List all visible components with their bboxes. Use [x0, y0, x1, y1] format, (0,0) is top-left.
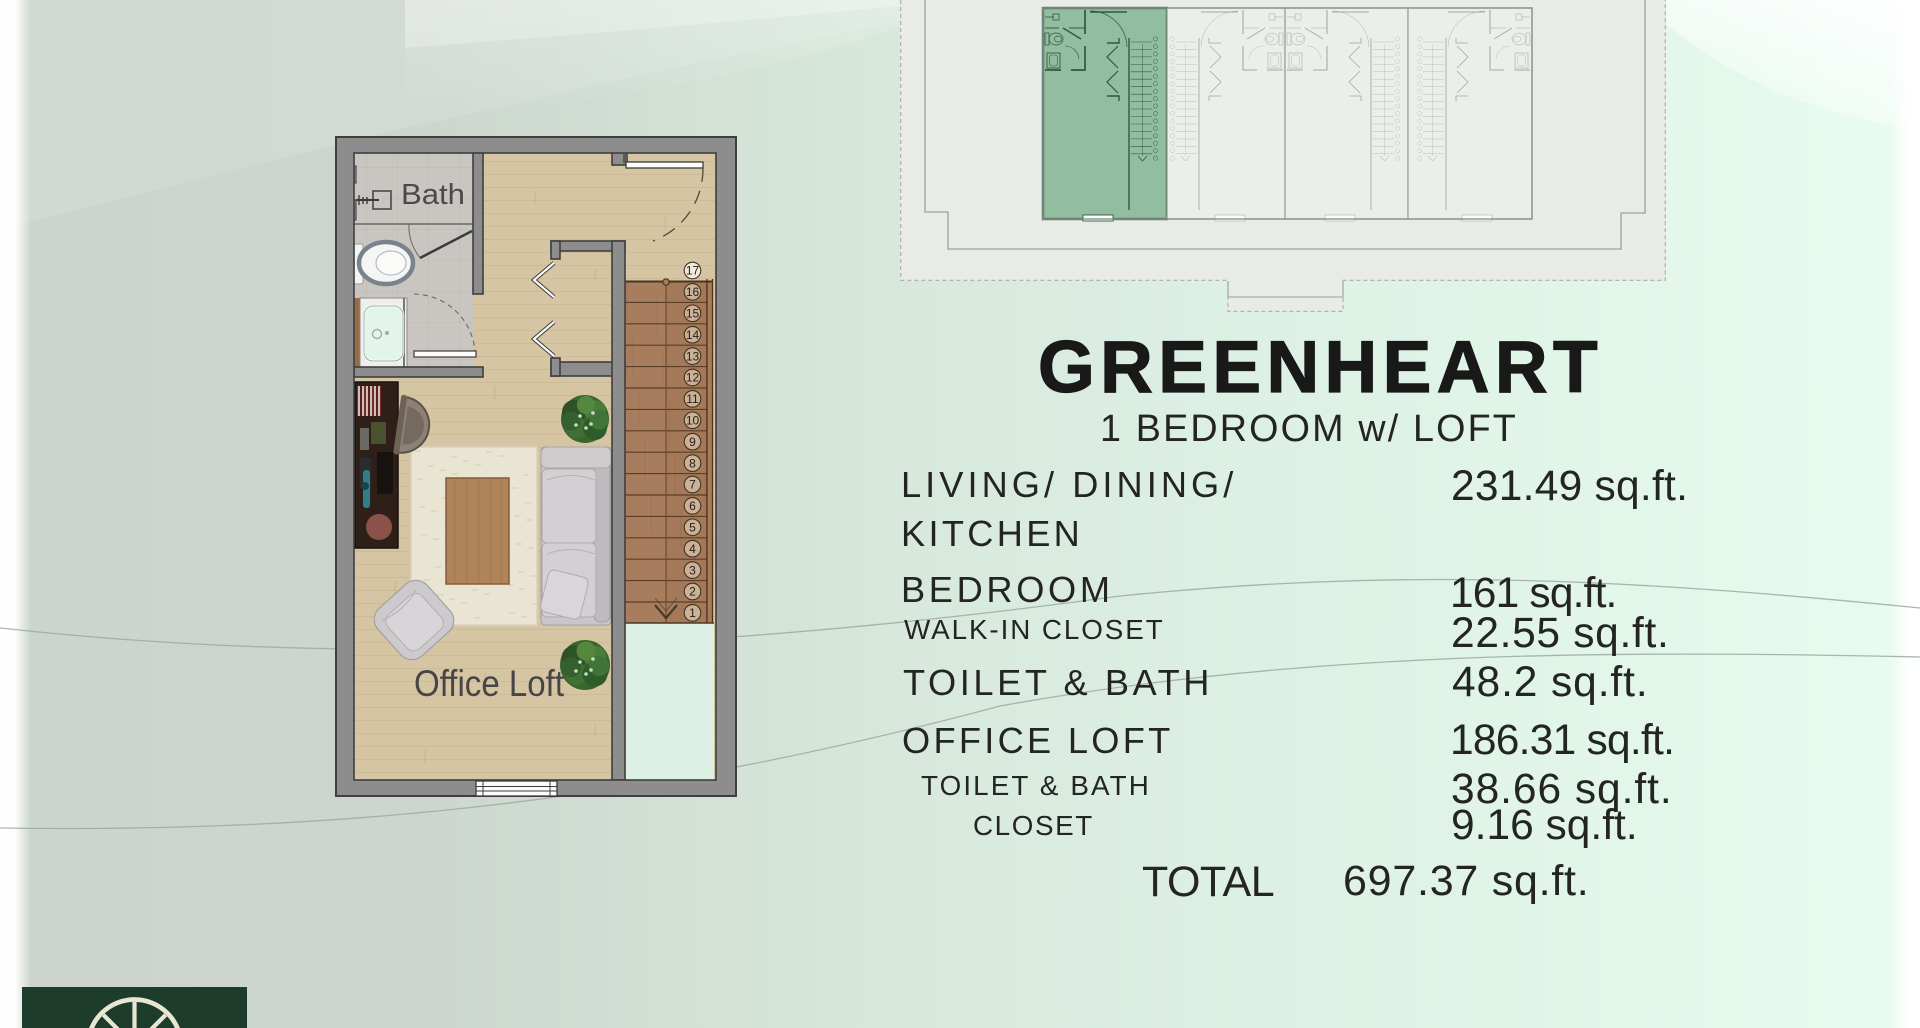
svg-text:10: 10 [686, 414, 700, 428]
svg-text:4: 4 [689, 542, 696, 556]
svg-text:5: 5 [689, 521, 696, 535]
svg-text:6: 6 [689, 499, 696, 513]
svg-text:17: 17 [686, 264, 700, 278]
svg-text:9: 9 [689, 435, 696, 449]
svg-text:13: 13 [686, 349, 700, 363]
svg-text:7: 7 [689, 478, 696, 492]
svg-text:12: 12 [686, 371, 700, 385]
svg-text:1: 1 [689, 606, 696, 620]
svg-text:Office Loft: Office Loft [414, 663, 565, 704]
svg-text:3: 3 [689, 563, 696, 577]
svg-text:2: 2 [689, 585, 696, 599]
svg-text:11: 11 [686, 392, 699, 406]
svg-text:14: 14 [686, 328, 700, 342]
svg-text:Bath: Bath [401, 179, 465, 211]
svg-text:15: 15 [686, 307, 700, 321]
svg-text:8: 8 [689, 456, 696, 470]
svg-text:16: 16 [686, 285, 700, 299]
